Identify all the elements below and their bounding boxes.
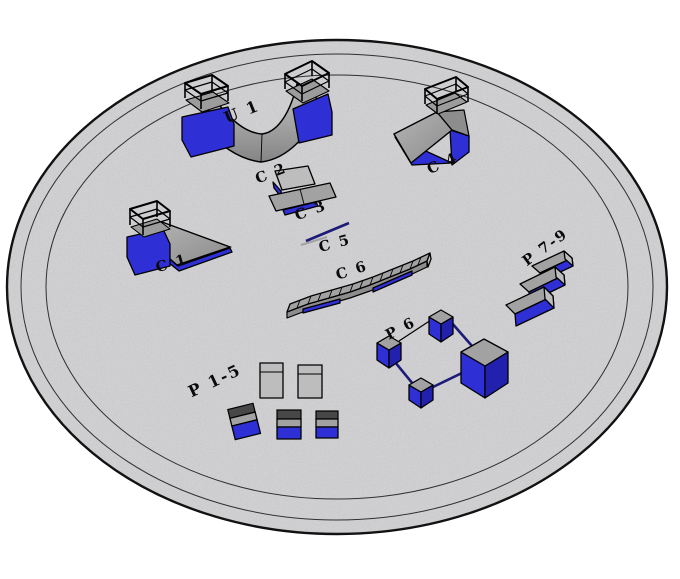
pad-1 [260, 363, 283, 398]
block-2 [277, 410, 301, 439]
block-3 [316, 411, 338, 438]
skatepark-3d-view: U 1 C 4 C 2 C 3 C 5 [0, 0, 680, 579]
skatepark-render: U 1 C 4 C 2 C 3 C 5 [0, 0, 680, 579]
pad-2 [298, 365, 322, 398]
